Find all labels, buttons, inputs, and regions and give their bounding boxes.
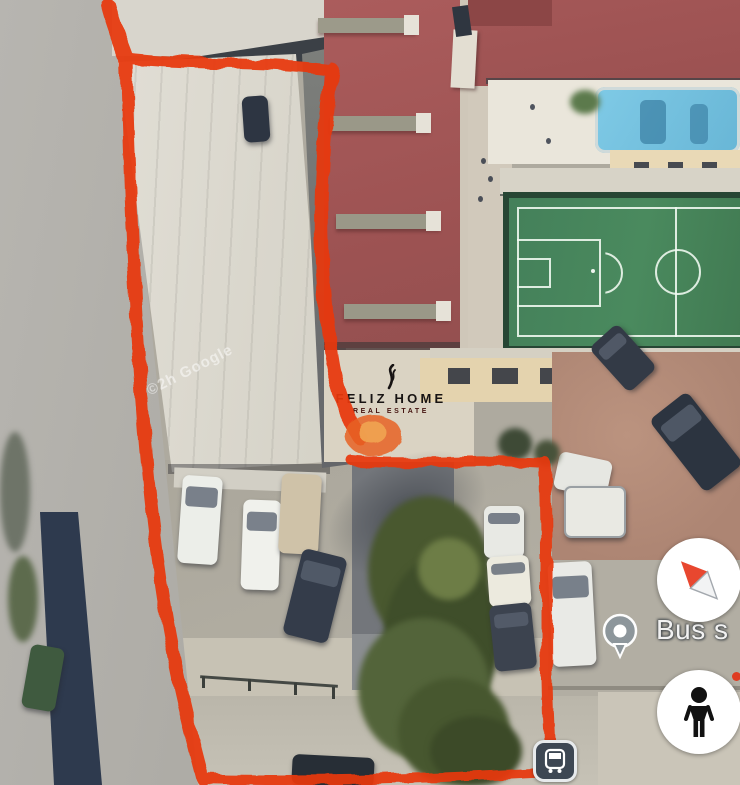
pegman-icon [673,684,725,740]
compass-button[interactable] [657,538,740,622]
transit-station-button[interactable] [533,740,577,782]
pegman-button[interactable] [657,670,740,754]
satellite-map-canvas[interactable]: ©2h Google FELIZ HOME REAL ESTATE [0,0,740,785]
red-speck [732,672,740,681]
compass-icon [667,548,731,612]
boundary-annotation [0,0,740,785]
bus-transit-icon [541,747,569,775]
bus-stop-pin-icon[interactable] [597,605,643,665]
